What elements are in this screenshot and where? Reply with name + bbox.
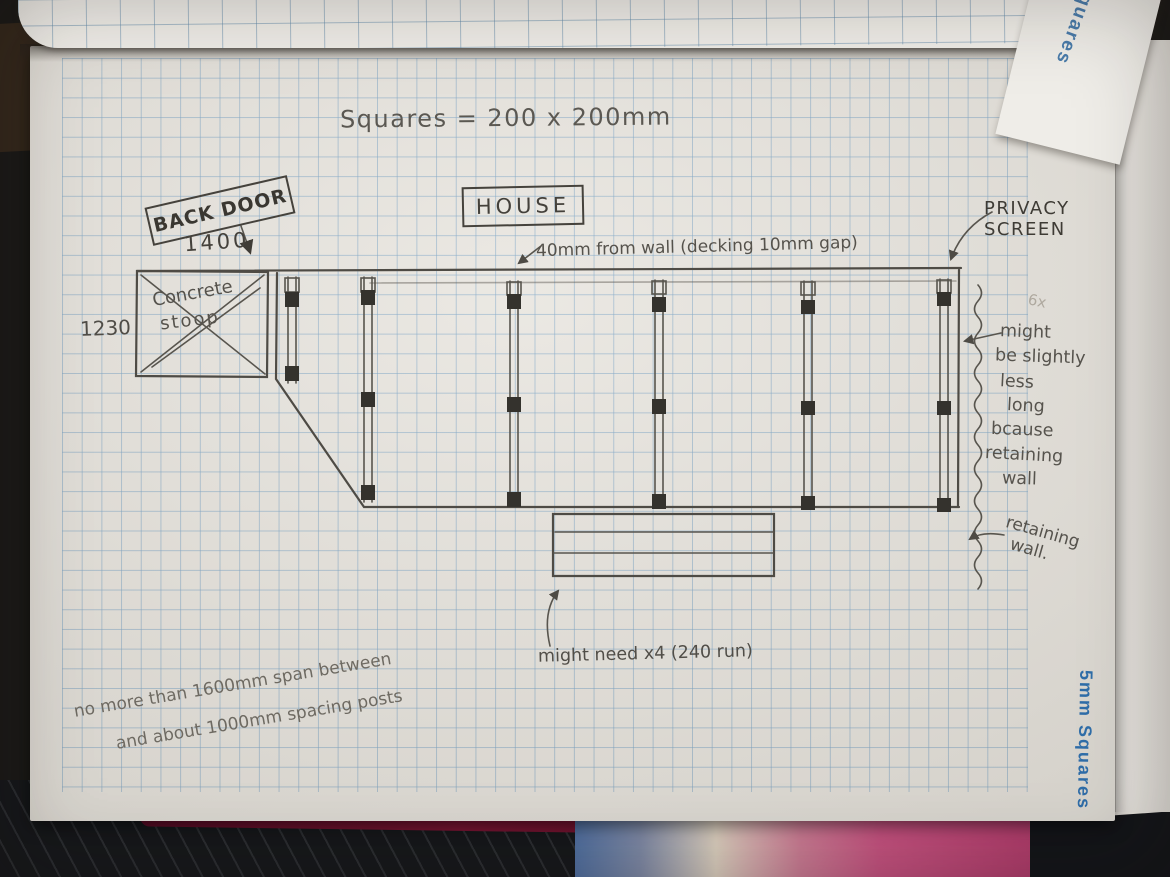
right-note-line: retaining [985, 443, 1064, 467]
privacy-screen-label: PRIVACY SCREEN [984, 198, 1070, 240]
curled-page [18, 0, 1080, 48]
curled-page-grid [18, 0, 1080, 48]
notebook-page [30, 46, 1115, 821]
scale-note: Squares = 200 x 200mm [340, 103, 672, 134]
right-note-line: be slightly [995, 345, 1086, 368]
back-door-dimension: 1400 [183, 228, 250, 257]
margin-print-label: 5mm Squares [1073, 670, 1096, 810]
right-note-line: wall [1002, 468, 1037, 489]
house-text: HOUSE [476, 193, 571, 219]
right-note-line: might [1000, 321, 1052, 343]
curled-page-print-label: Squares [1050, 0, 1101, 68]
privacy-line2: SCREEN [984, 219, 1070, 240]
right-note-line: long [1007, 395, 1046, 417]
house-label: HOUSE [462, 185, 585, 228]
deck-plan-photo: Squares [0, 0, 1170, 877]
faint-pencil-mark: 6x [1026, 290, 1048, 311]
right-note-line: less [999, 371, 1034, 393]
stoop-dimension: 1230 [80, 315, 132, 341]
privacy-line1: PRIVACY [984, 198, 1070, 219]
right-note-line: bcause [991, 419, 1054, 441]
